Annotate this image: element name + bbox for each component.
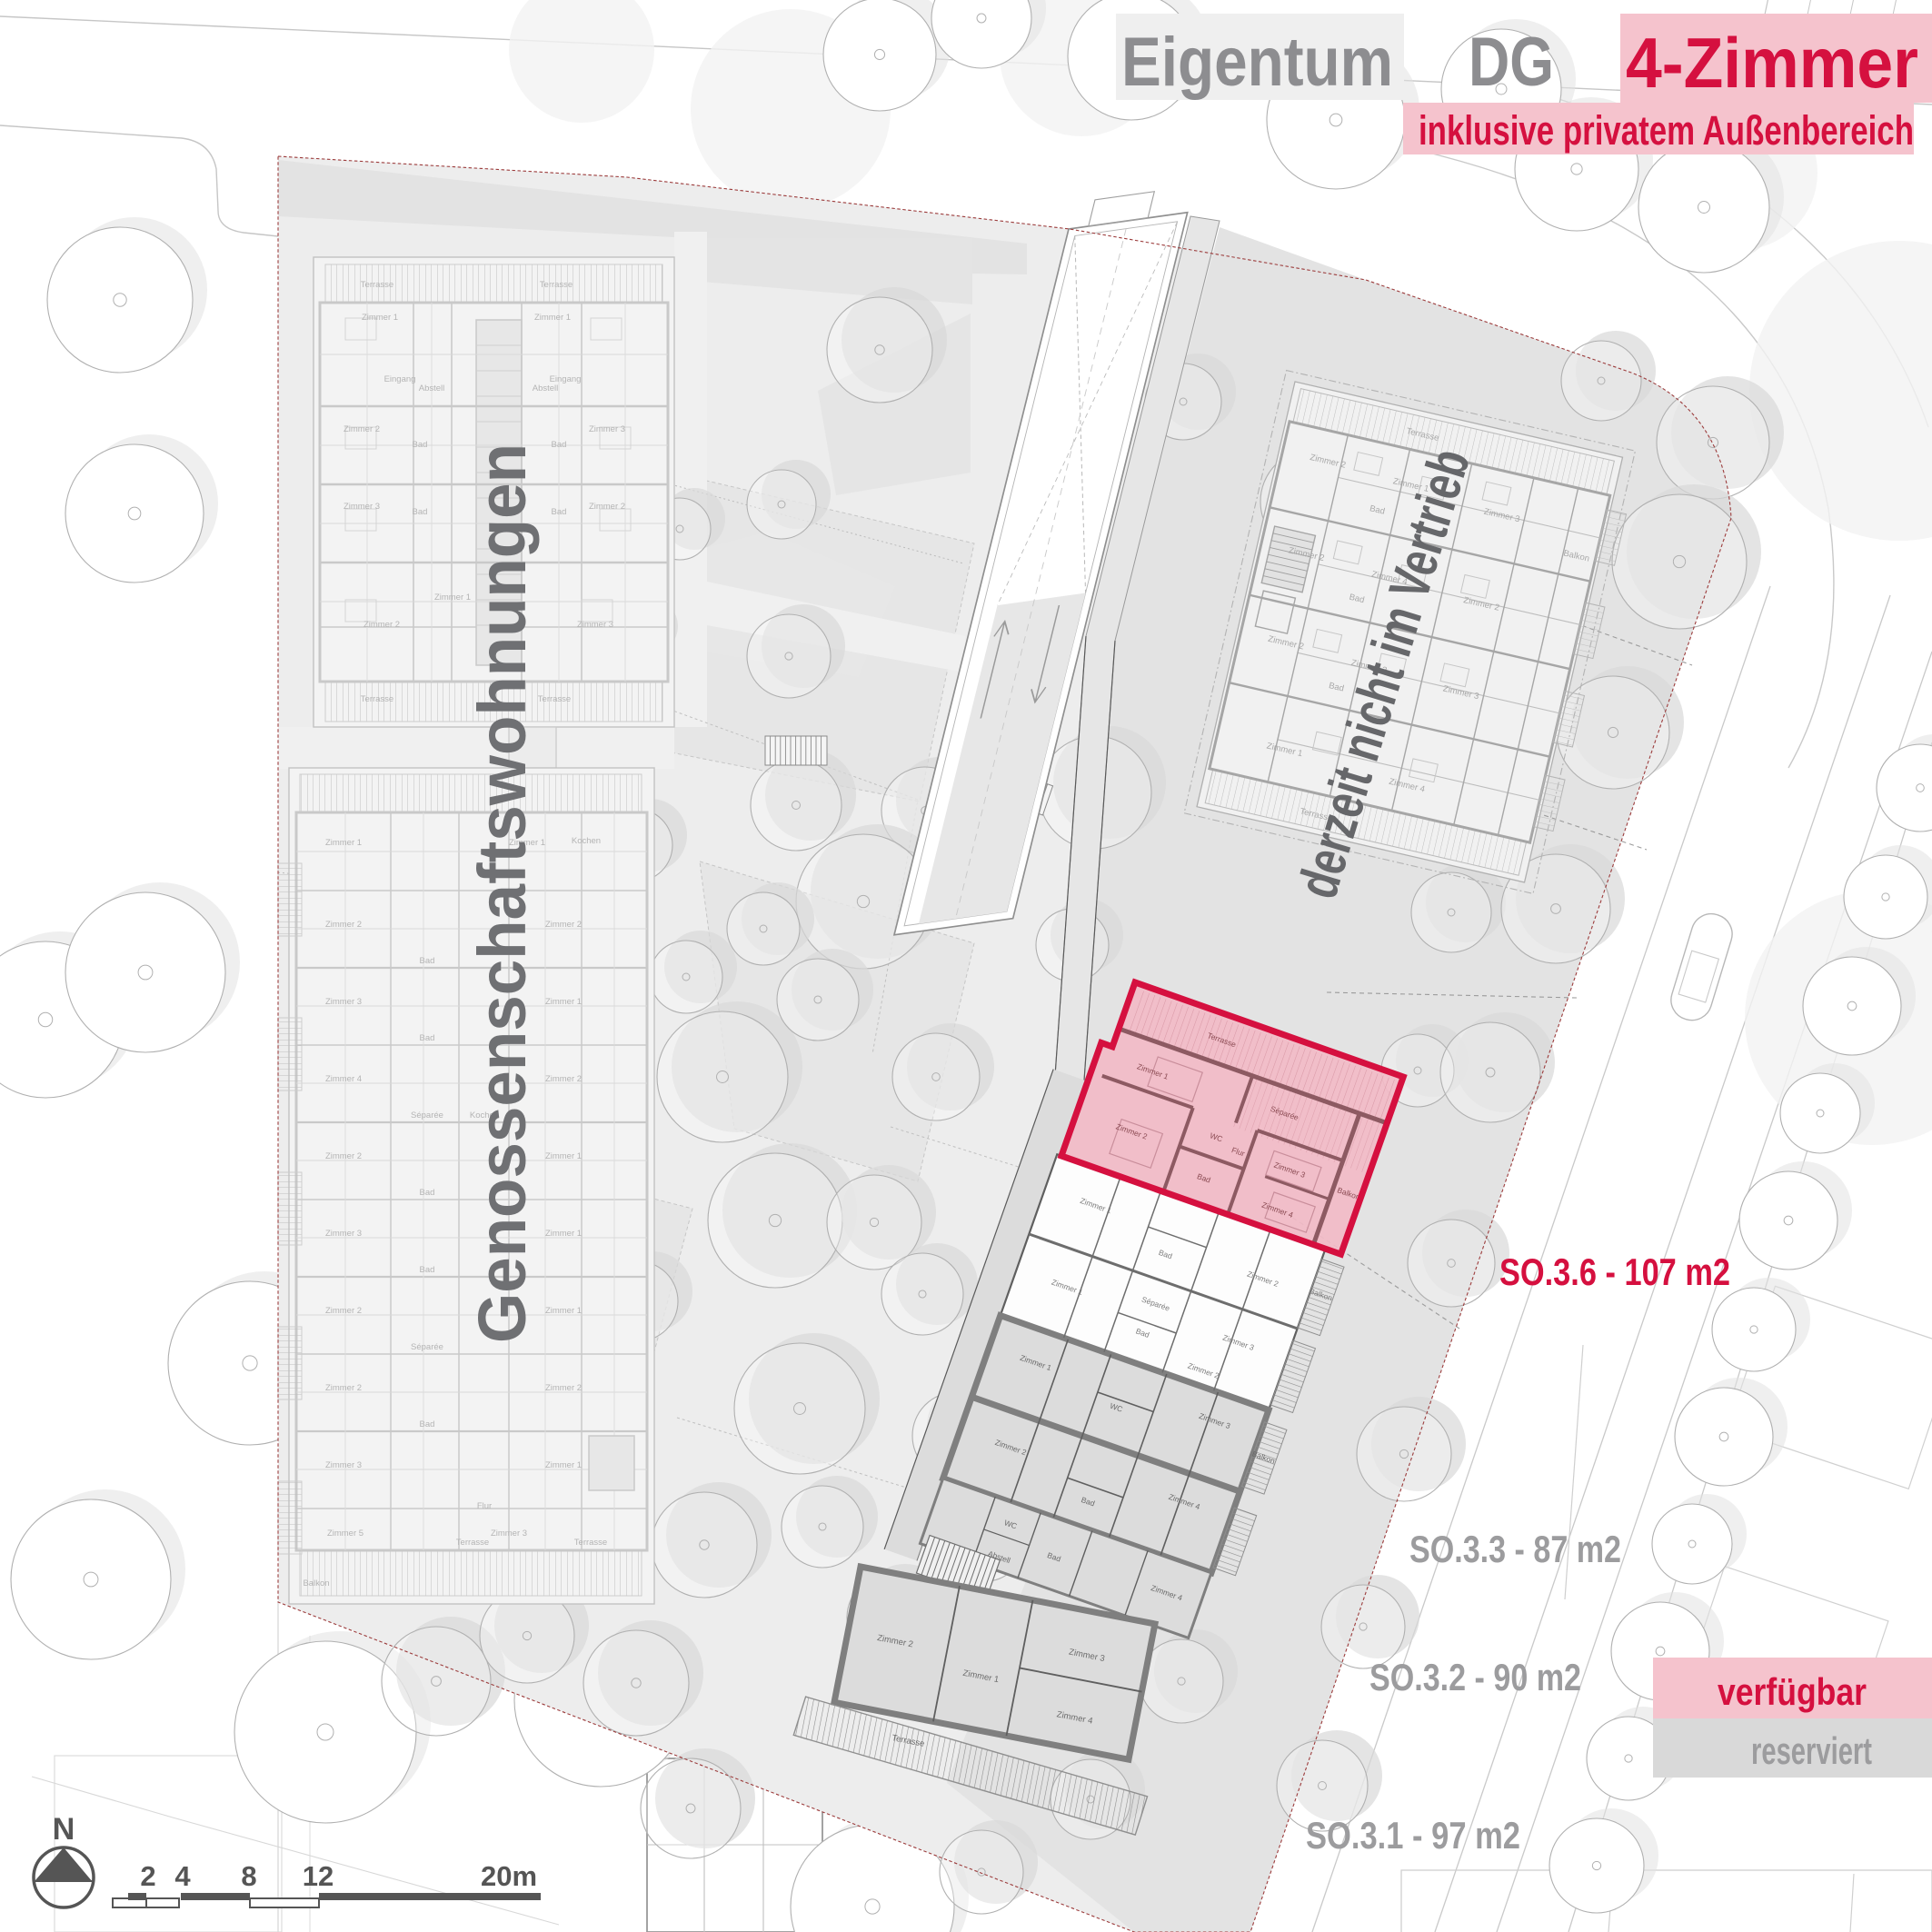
svg-text:Bad: Bad [420, 1265, 435, 1275]
svg-text:Genossenschaftswohnungen: Genossenschaftswohnungen [464, 443, 540, 1343]
svg-text:Zimmer 2: Zimmer 2 [344, 424, 380, 434]
svg-text:12: 12 [303, 1860, 334, 1892]
svg-text:Zimmer 2: Zimmer 2 [589, 502, 625, 512]
svg-text:Zimmer 3: Zimmer 3 [344, 502, 380, 512]
svg-text:Bad: Bad [552, 507, 567, 517]
svg-text:Zimmer 1: Zimmer 1 [545, 1460, 582, 1470]
svg-text:inklusive privatem Außenbereic: inklusive privatem Außenbereich [1419, 107, 1914, 154]
svg-text:Zimmer 5: Zimmer 5 [327, 1529, 363, 1539]
svg-text:Zimmer 1: Zimmer 1 [545, 1306, 582, 1316]
svg-text:Zimmer 2: Zimmer 2 [545, 1383, 582, 1393]
svg-text:Séparée: Séparée [411, 1110, 443, 1120]
svg-text:Abstell: Abstell [533, 383, 559, 393]
svg-text:Bad: Bad [420, 956, 435, 966]
svg-text:Séparée: Séparée [411, 1342, 443, 1352]
svg-text:8: 8 [241, 1860, 256, 1892]
svg-text:Flur: Flur [477, 1501, 492, 1511]
svg-text:DG: DG [1469, 24, 1554, 101]
svg-text:Zimmer 1: Zimmer 1 [545, 1151, 582, 1161]
svg-text:Bad: Bad [420, 1419, 435, 1429]
svg-text:Terrasse: Terrasse [456, 1538, 489, 1548]
svg-text:Zimmer 2: Zimmer 2 [325, 1383, 362, 1393]
svg-text:Zimmer 1: Zimmer 1 [362, 313, 398, 323]
svg-text:Zimmer 2: Zimmer 2 [325, 920, 362, 930]
svg-text:Terrasse: Terrasse [574, 1538, 607, 1548]
svg-text:Zimmer 3: Zimmer 3 [325, 1229, 362, 1239]
svg-text:Terrasse: Terrasse [361, 694, 393, 704]
svg-text:Kochen: Kochen [572, 836, 601, 846]
svg-text:Terrasse: Terrasse [538, 694, 571, 704]
svg-text:Zimmer 3: Zimmer 3 [589, 424, 625, 434]
svg-text:2: 2 [140, 1860, 155, 1892]
svg-text:SO.3.6 - 107 m2: SO.3.6 - 107 m2 [1499, 1250, 1730, 1293]
svg-text:Eingang: Eingang [384, 374, 416, 384]
svg-text:Zimmer 3: Zimmer 3 [325, 997, 362, 1007]
svg-text:4: 4 [174, 1860, 191, 1892]
svg-text:4-Zimmer: 4-Zimmer [1626, 23, 1918, 103]
svg-text:SO.3.3 - 87 m2: SO.3.3 - 87 m2 [1409, 1528, 1621, 1570]
svg-text:Zimmer 3: Zimmer 3 [491, 1529, 527, 1539]
svg-text:N: N [53, 1812, 75, 1847]
svg-text:Terrasse: Terrasse [361, 280, 393, 290]
svg-text:Zimmer 3: Zimmer 3 [577, 620, 613, 630]
svg-text:verfügbar: verfügbar [1718, 1670, 1867, 1713]
svg-text:SO.3.2 - 90 m2: SO.3.2 - 90 m2 [1369, 1656, 1581, 1698]
svg-text:Zimmer 2: Zimmer 2 [325, 1306, 362, 1316]
svg-text:Zimmer 2: Zimmer 2 [325, 1151, 362, 1161]
svg-text:Zimmer 2: Zimmer 2 [363, 620, 400, 630]
svg-text:Balkon: Balkon [303, 1578, 329, 1588]
svg-text:Terrasse: Terrasse [540, 280, 573, 290]
svg-text:Bad: Bad [552, 440, 567, 450]
svg-text:Zimmer 2: Zimmer 2 [545, 1074, 582, 1084]
svg-text:Zimmer 1: Zimmer 1 [325, 838, 362, 848]
svg-text:Bad: Bad [413, 507, 428, 517]
svg-text:Bad: Bad [420, 1033, 435, 1043]
svg-text:Bad: Bad [413, 440, 428, 450]
svg-text:Zimmer 4: Zimmer 4 [325, 1074, 362, 1084]
svg-text:Abstell: Abstell [419, 383, 445, 393]
svg-text:Zimmer 1: Zimmer 1 [534, 313, 571, 323]
svg-text:SO.3.1 - 97 m2: SO.3.1 - 97 m2 [1306, 1814, 1520, 1857]
svg-text:Zimmer 1: Zimmer 1 [545, 1229, 582, 1239]
svg-text:Zimmer 1: Zimmer 1 [545, 997, 582, 1007]
svg-text:Bad: Bad [420, 1188, 435, 1198]
svg-text:Zimmer 3: Zimmer 3 [325, 1460, 362, 1470]
svg-text:reserviert: reserviert [1751, 1729, 1872, 1772]
svg-text:20m: 20m [481, 1860, 537, 1892]
svg-text:Zimmer 2: Zimmer 2 [545, 920, 582, 930]
svg-text:Eigentum: Eigentum [1121, 24, 1393, 101]
